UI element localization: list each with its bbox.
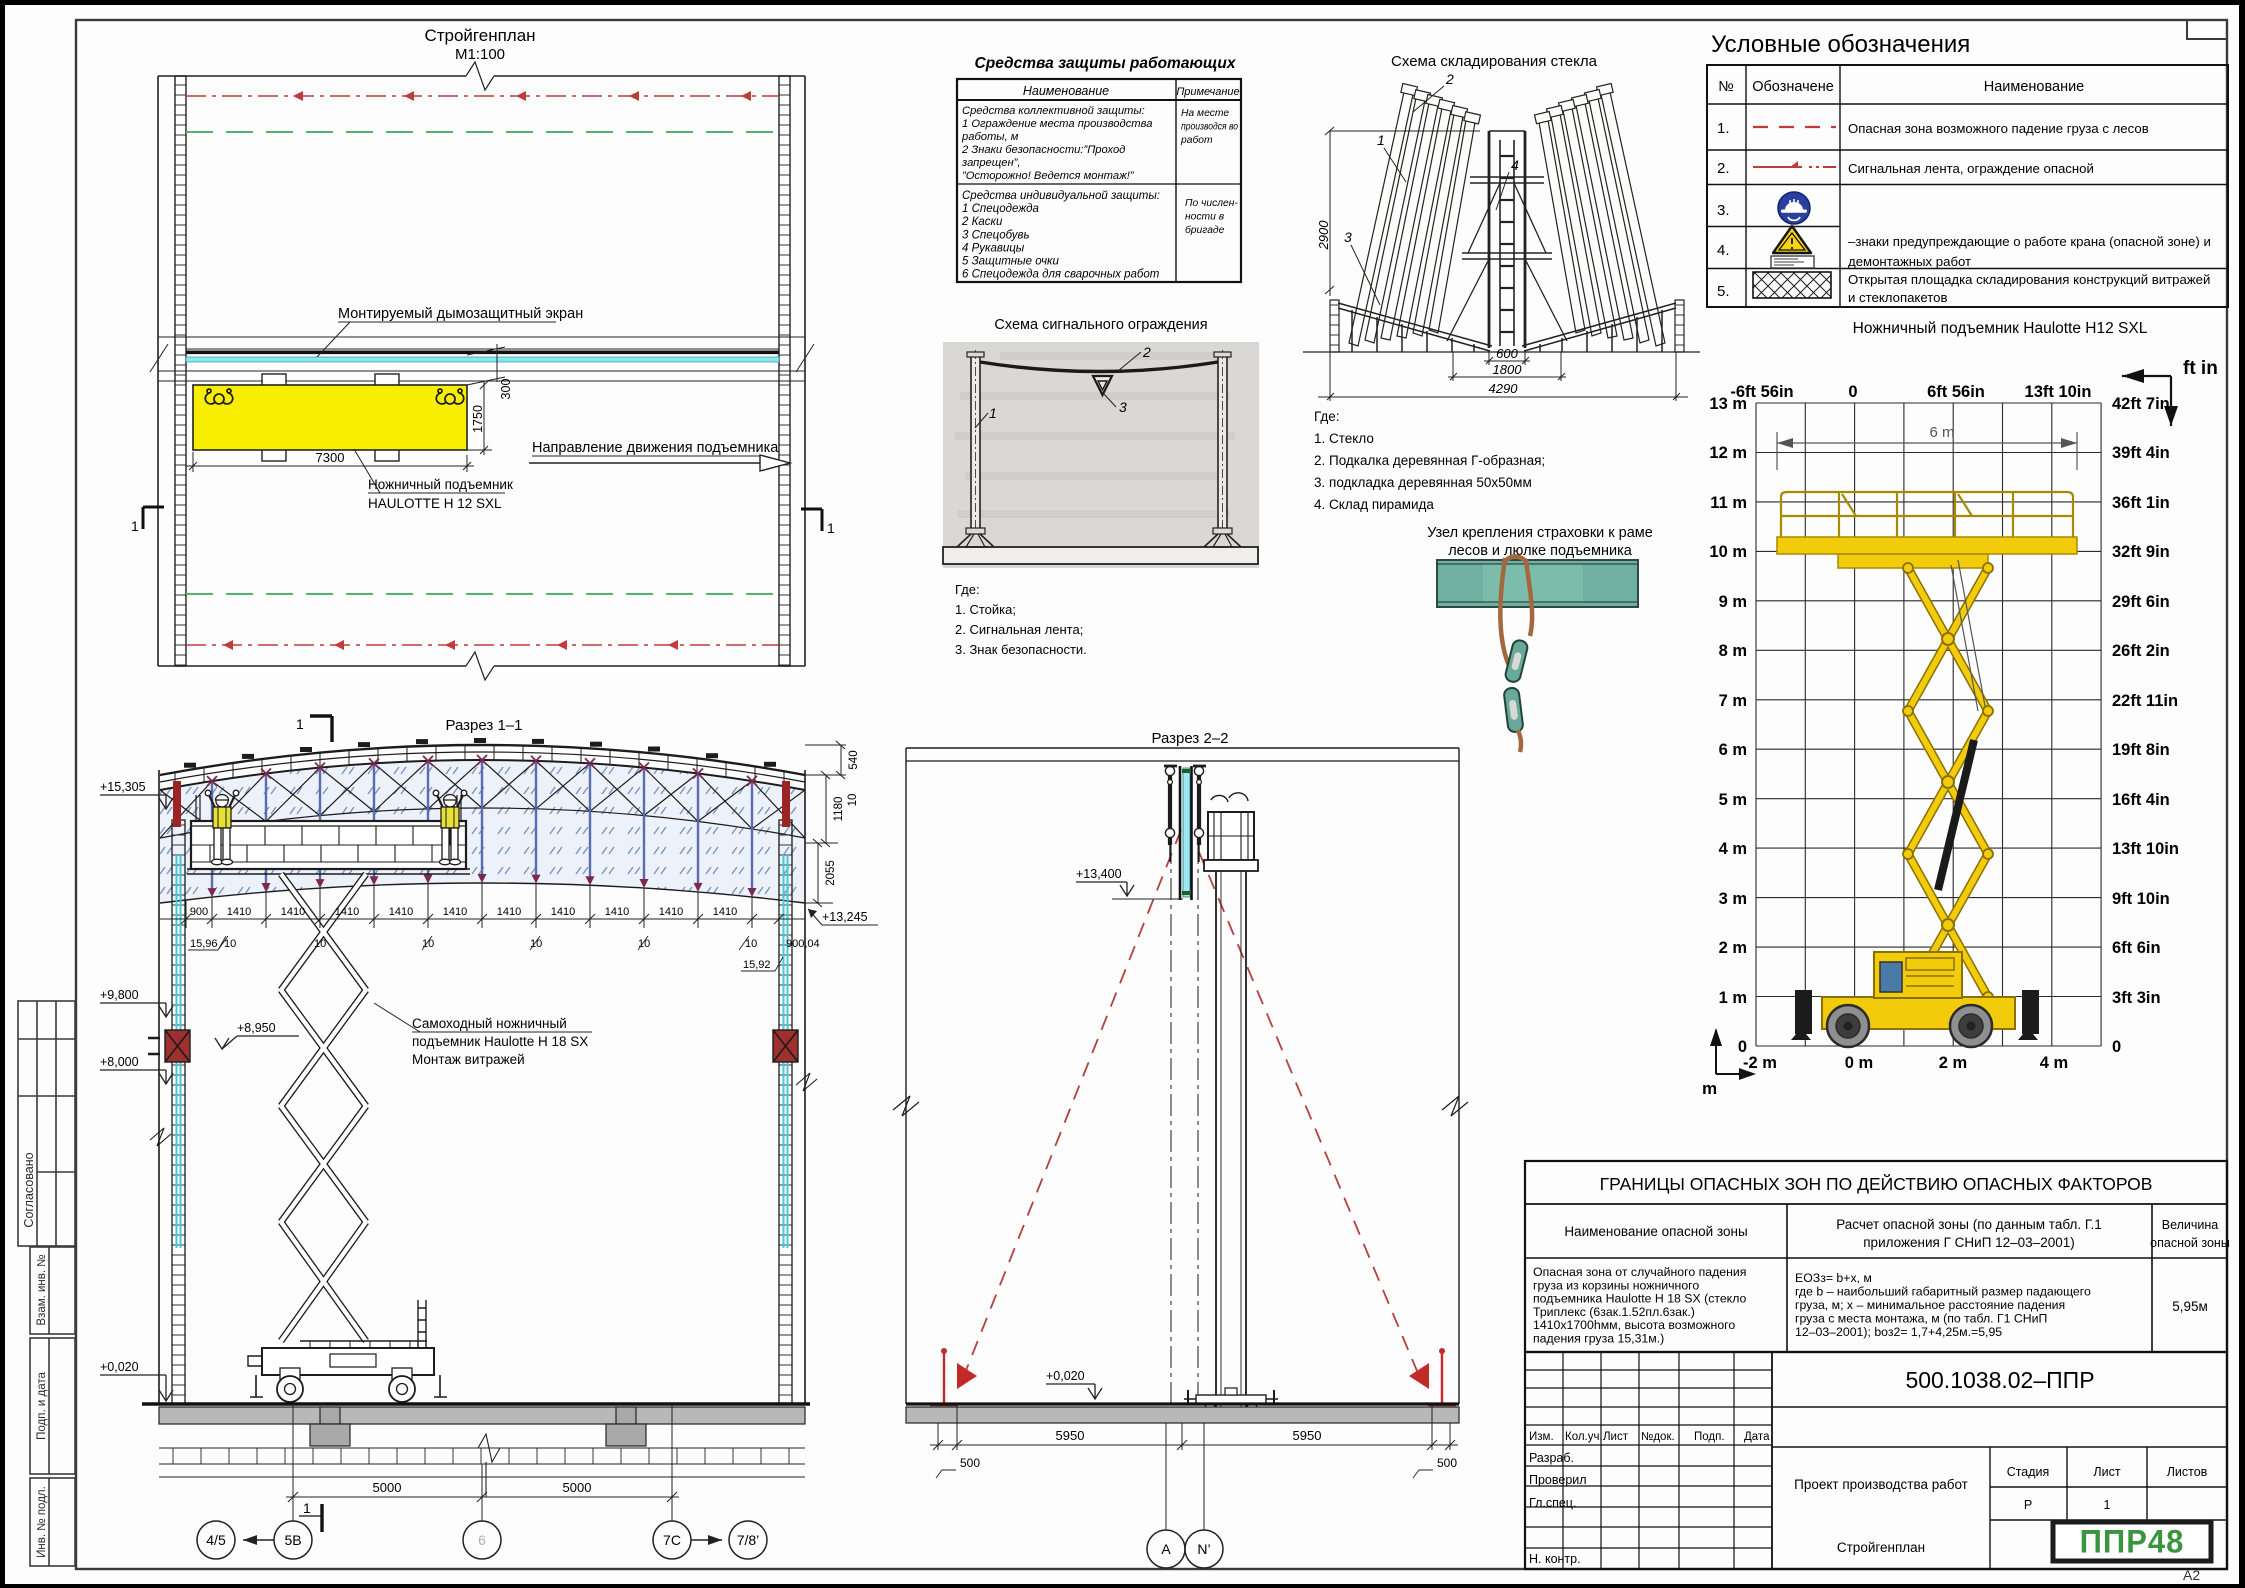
svg-text:Самоходный ножничный: Самоходный ножничный — [412, 1016, 567, 1031]
svg-text:600: 600 — [1496, 346, 1518, 361]
svg-text:Стадия: Стадия — [2007, 1465, 2050, 1479]
svg-text:1410: 1410 — [389, 906, 413, 918]
svg-text:13ft 10in: 13ft 10in — [2025, 383, 2092, 401]
svg-text:+13,245: +13,245 — [822, 910, 868, 924]
svg-text:Разрез 2–2: Разрез 2–2 — [1152, 730, 1229, 747]
svg-text:Изм.: Изм. — [1529, 1431, 1554, 1443]
svg-text:10: 10 — [847, 794, 859, 807]
svg-text:Наименование: Наименование — [1023, 84, 1109, 98]
svg-text:Кол.уч.: Кол.уч. — [1565, 1431, 1603, 1443]
svg-text:Р: Р — [2024, 1498, 2032, 1512]
svg-text:5,95м: 5,95м — [2172, 1299, 2208, 1314]
svg-text:15,96: 15,96 — [190, 938, 218, 950]
svg-text:7300: 7300 — [316, 450, 345, 465]
svg-text:работ: работ — [1180, 134, 1213, 146]
svg-text:5950: 5950 — [1293, 1428, 1322, 1443]
svg-text:500: 500 — [1437, 1456, 1457, 1470]
svg-text:13 m: 13 m — [1709, 395, 1747, 413]
svg-text:4/5: 4/5 — [206, 1532, 226, 1548]
svg-text:0 m: 0 m — [1845, 1054, 1873, 1072]
svg-text:9 m: 9 m — [1719, 593, 1747, 611]
svg-text:3ft 3in: 3ft 3in — [2112, 989, 2161, 1007]
svg-text:+8,000: +8,000 — [100, 1055, 139, 1069]
svg-text:2.: 2. — [1717, 160, 1730, 177]
svg-text:Обозначене: Обозначене — [1752, 79, 1834, 95]
svg-text:работы, м: работы, м — [961, 131, 1019, 143]
svg-text:6 m: 6 m — [1719, 741, 1747, 759]
svg-text:2 Знаки безопасности:”Проход: 2 Знаки безопасности:”Проход — [961, 144, 1125, 156]
svg-text:демонтажных работ: демонтажных работ — [1848, 254, 1971, 269]
svg-text:груза с места монтажа, м (по т: груза с места монтажа, м (по табл. Г1 СН… — [1795, 1312, 2047, 1326]
svg-text:7C: 7C — [663, 1532, 681, 1548]
svg-text:груза, м; х – минимальное расс: груза, м; х – минимальное расстояние пад… — [1795, 1298, 2065, 1312]
svg-text:Монтаж витражей: Монтаж витражей — [412, 1052, 525, 1067]
svg-text:4: 4 — [1511, 157, 1519, 173]
svg-text:42ft 7in: 42ft 7in — [2112, 395, 2170, 413]
svg-text:0: 0 — [1848, 383, 1857, 401]
svg-text:ности в: ности в — [1185, 212, 1225, 223]
svg-text:Где:: Где: — [955, 582, 980, 597]
svg-text:Ножничный подъемник Haulotte H: Ножничный подъемник Haulotte H12 SXL — [1853, 320, 2148, 337]
svg-text:Схема складирования стекла: Схема складирования стекла — [1391, 53, 1598, 70]
svg-text:6: 6 — [478, 1532, 486, 1548]
svg-text:12 m: 12 m — [1709, 444, 1747, 462]
svg-text:+15,305: +15,305 — [100, 780, 146, 794]
svg-text:8 m: 8 m — [1719, 642, 1747, 660]
svg-text:Открытая площадка складировани: Открытая площадка складирования конструк… — [1848, 272, 2210, 287]
svg-text:2: 2 — [1142, 344, 1151, 360]
svg-text:HAULOTTE H 12 SXL: HAULOTTE H 12 SXL — [368, 496, 502, 511]
svg-text:900,04: 900,04 — [786, 938, 820, 950]
svg-text:1 Ограждение места производств: 1 Ограждение места производства — [962, 118, 1152, 130]
svg-text:Листов: Листов — [2167, 1465, 2208, 1479]
svg-text:13ft 10in: 13ft 10in — [2112, 840, 2179, 858]
svg-text:1410: 1410 — [551, 906, 575, 918]
svg-text:Дата: Дата — [1744, 1431, 1770, 1443]
svg-text:Стройгенплан: Стройгенплан — [424, 26, 535, 45]
svg-text:3: 3 — [1119, 399, 1127, 415]
svg-text:1: 1 — [827, 520, 835, 536]
svg-text:1.: 1. — [1717, 120, 1730, 137]
svg-text:Расчет опасной зоны (по данным: Расчет опасной зоны (по данным табл. Г.1 — [1836, 1217, 2102, 1232]
svg-text:1. Стекло: 1. Стекло — [1314, 431, 1374, 446]
svg-text:26ft 2in: 26ft 2in — [2112, 642, 2170, 660]
svg-text:0: 0 — [2112, 1038, 2121, 1056]
svg-text:5.: 5. — [1717, 283, 1730, 300]
svg-text:где b – наибольший габаритный: где b – наибольший габаритный размер пад… — [1795, 1285, 2091, 1299]
svg-text:Гл.спец.: Гл.спец. — [1529, 1496, 1576, 1510]
svg-text:16ft 4in: 16ft 4in — [2112, 791, 2170, 809]
svg-text:6 Спецодежда для сварочных раб: 6 Спецодежда для сварочных работ — [962, 269, 1160, 281]
svg-text:Разраб.: Разраб. — [1529, 1451, 1574, 1465]
svg-text:12–03–2001); bоз2= 1,7+4,25м.=: 12–03–2001); bоз2= 1,7+4,25м.=5,95 — [1795, 1325, 2002, 1339]
svg-text:1800: 1800 — [1493, 362, 1523, 377]
svg-text:22ft 11in: 22ft 11in — [2112, 692, 2178, 710]
svg-text:39ft 4in: 39ft 4in — [2112, 444, 2170, 462]
svg-text:падения груза 15,31м.): падения груза 15,31м.) — [1533, 1332, 1664, 1346]
svg-text:1410: 1410 — [497, 906, 521, 918]
svg-text:Лист: Лист — [1603, 1431, 1629, 1443]
svg-text:15,92: 15,92 — [743, 959, 771, 971]
svg-text:5B: 5B — [284, 1532, 301, 1548]
svg-text:ППР48: ППР48 — [2080, 1523, 2185, 1560]
svg-text:Подп.: Подп. — [1694, 1431, 1725, 1443]
svg-text:Величина: Величина — [2162, 1218, 2219, 1232]
svg-text:4. Склад пирамида: 4. Склад пирамида — [1314, 497, 1434, 512]
svg-text:ft in: ft in — [2183, 358, 2218, 379]
svg-text:N’: N’ — [1197, 1541, 1210, 1557]
svg-text:3 m: 3 m — [1719, 890, 1747, 908]
svg-text:5000: 5000 — [563, 1480, 592, 1495]
svg-text:300: 300 — [499, 379, 513, 400]
svg-text:1: 1 — [303, 1500, 311, 1516]
svg-text:1750: 1750 — [471, 405, 485, 433]
svg-text:подъемника Haulotte Н 18 SX (с: подъемника Haulotte Н 18 SX (стекло — [1533, 1292, 1747, 1306]
svg-text:Разрез 1–1: Разрез 1–1 — [446, 717, 523, 734]
svg-text:Направление движения подъемник: Направление движения подъемника — [532, 440, 779, 456]
svg-text:1: 1 — [2104, 1498, 2111, 1512]
svg-text:9ft 10in: 9ft 10in — [2112, 890, 2170, 908]
svg-text:+0,020: +0,020 — [1046, 1369, 1085, 1383]
svg-text:№: № — [1718, 79, 1734, 95]
svg-text:6ft 56in: 6ft 56in — [1927, 383, 1985, 401]
svg-text:опасной зоны: опасной зоны — [2150, 1236, 2230, 1250]
svg-text:груза из корзины ножничного: груза из корзины ножничного — [1533, 1278, 1699, 1292]
svg-text:Средства индивидуальной защиты: Средства индивидуальной защиты: — [962, 190, 1160, 202]
svg-text:Сигнальная лента, ограждение о: Сигнальная лента, ограждение опасной — [1848, 161, 2094, 176]
svg-text:11 m: 11 m — [1710, 494, 1747, 512]
svg-text:Опасная зона возможного падени: Опасная зона возможного падение груза с … — [1848, 121, 2149, 136]
svg-text:запрещен”,: запрещен”, — [961, 157, 1021, 169]
svg-text:1410: 1410 — [227, 906, 251, 918]
svg-text:ГРАНИЦЫ ОПАСНЫХ ЗОН ПО ДЕЙСТВИ: ГРАНИЦЫ ОПАСНЫХ ЗОН ПО ДЕЙСТВИЮ ОПАСНЫХ … — [1600, 1173, 2153, 1194]
svg-text:+13,400: +13,400 — [1076, 867, 1122, 881]
svg-text:и стеклопакетов: и стеклопакетов — [1848, 290, 1947, 305]
svg-text:1: 1 — [131, 518, 139, 534]
svg-text:Наименование опасной зоны: Наименование опасной зоны — [1564, 1224, 1747, 1239]
svg-text:Примечание: Примечание — [1176, 86, 1239, 98]
svg-text:Стройгенплан: Стройгенплан — [1837, 1540, 1925, 1555]
svg-text:Триплекс (6зак.1.52пл.6зак.): Триплекс (6зак.1.52пл.6зак.) — [1533, 1305, 1695, 1319]
svg-text:2: 2 — [1445, 71, 1454, 87]
svg-text:1180: 1180 — [833, 797, 845, 822]
svg-text:1410х1700hмм, высота возможног: 1410х1700hмм, высота возможного — [1533, 1318, 1735, 1332]
svg-text:1: 1 — [296, 716, 304, 732]
svg-text:+8,950: +8,950 — [237, 1021, 276, 1035]
svg-text:7 m: 7 m — [1719, 692, 1747, 710]
svg-text:540: 540 — [848, 750, 860, 769]
svg-text:1410: 1410 — [281, 906, 305, 918]
svg-text:2. Подкалка деревянная Г-образ: 2. Подкалка деревянная Г-образная; — [1314, 453, 1545, 468]
svg-text:Взам. инв. №: Взам. инв. № — [36, 1254, 48, 1325]
svg-text:5000: 5000 — [373, 1480, 402, 1495]
svg-text:4290: 4290 — [1489, 381, 1519, 396]
svg-text:Согласовано: Согласовано — [22, 1152, 36, 1227]
svg-text:Подп. и дата: Подп. и дата — [36, 1372, 48, 1440]
svg-text:подъемник Haulotte Н 18 SX: подъемник Haulotte Н 18 SX — [412, 1034, 588, 1049]
svg-text:4 Рукавицы: 4 Рукавицы — [962, 242, 1025, 254]
svg-text:1: 1 — [989, 405, 997, 421]
svg-text:ЕОЗз= b+х, м: ЕОЗз= b+х, м — [1795, 1271, 1872, 1285]
svg-text:приложения Г СНиП 12–03–2001): приложения Г СНиП 12–03–2001) — [1863, 1235, 2074, 1250]
svg-text:6 m: 6 m — [1929, 424, 1954, 441]
svg-text:1. Стойка;: 1. Стойка; — [955, 602, 1016, 617]
svg-text:Условные обозначения: Условные обозначения — [1711, 31, 1970, 58]
svg-text:3. Знак безопасности.: 3. Знак безопасности. — [955, 642, 1087, 657]
svg-text:Узел крепления страховки к рам: Узел крепления страховки к раме — [1427, 525, 1653, 541]
svg-text:1 m: 1 m — [1719, 989, 1747, 1007]
svg-text:1410: 1410 — [659, 906, 683, 918]
svg-text:3. подкладка деревянная 50х50м: 3. подкладка деревянная 50х50мм — [1314, 475, 1532, 490]
svg-text:На месте: На месте — [1181, 108, 1229, 119]
svg-text:1410: 1410 — [443, 906, 467, 918]
svg-text:3.: 3. — [1717, 202, 1730, 219]
svg-text:1: 1 — [1377, 132, 1385, 148]
svg-text:Проект производства работ: Проект производства работ — [1794, 1477, 1968, 1492]
svg-text:1410: 1410 — [713, 906, 737, 918]
svg-text:29ft 6in: 29ft 6in — [2112, 593, 2170, 611]
svg-text:+9,800: +9,800 — [100, 988, 139, 1002]
svg-text:–знаки предупреждающие о работ: –знаки предупреждающие о работе крана (о… — [1848, 234, 2211, 249]
svg-text:2 m: 2 m — [1939, 1054, 1967, 1072]
svg-text:2055: 2055 — [825, 860, 837, 886]
svg-text:4 m: 4 m — [1719, 840, 1747, 858]
svg-text:А: А — [1161, 1541, 1171, 1557]
svg-text:По числен-: По числен- — [1185, 198, 1238, 209]
svg-text:А2: А2 — [2183, 1567, 2200, 1583]
svg-text:1410: 1410 — [335, 906, 359, 918]
svg-text:Лист: Лист — [2093, 1465, 2120, 1479]
svg-text:Средства коллективной защиты:: Средства коллективной защиты: — [962, 105, 1145, 117]
svg-text:19ft 8in: 19ft 8in — [2112, 741, 2170, 759]
svg-text:500.1038.02–ППР: 500.1038.02–ППР — [1905, 1367, 2094, 1393]
svg-text:Ножничный подъемник: Ножничный подъемник — [368, 477, 513, 492]
svg-text:производся во: производся во — [1181, 122, 1238, 133]
svg-text:3: 3 — [1344, 229, 1352, 245]
svg-text:Средства защиты работающих: Средства защиты работающих — [975, 55, 1237, 72]
svg-text:5 Защитные очки: 5 Защитные очки — [962, 256, 1059, 268]
svg-text:2 m: 2 m — [1719, 939, 1747, 957]
svg-text:”Осторожно! Ведется монтаж!”: ”Осторожно! Ведется монтаж!” — [962, 170, 1135, 182]
svg-text:Инв. № подл.: Инв. № подл. — [36, 1486, 48, 1558]
svg-text:Наименование: Наименование — [1984, 79, 2085, 95]
svg-text:7/8’: 7/8’ — [737, 1532, 760, 1548]
svg-text:Н. контр.: Н. контр. — [1529, 1552, 1581, 1566]
svg-text:2. Сигнальная лента;: 2. Сигнальная лента; — [955, 622, 1083, 637]
svg-text:m: m — [1702, 1079, 1717, 1098]
svg-text:Монтируемый дымозащитный экран: Монтируемый дымозащитный экран — [338, 306, 583, 322]
svg-text:-2 m: -2 m — [1743, 1054, 1777, 1072]
svg-text:Проверил: Проверил — [1529, 1473, 1587, 1487]
svg-text:900: 900 — [190, 906, 208, 918]
svg-text:36ft 1in: 36ft 1in — [2112, 494, 2170, 512]
svg-text:1410: 1410 — [605, 906, 629, 918]
svg-text:2 Каски: 2 Каски — [961, 216, 1003, 228]
svg-text:лесов и люлке подъемника: лесов и люлке подъемника — [1448, 543, 1633, 559]
svg-text:1 Спецодежда: 1 Спецодежда — [962, 203, 1039, 215]
svg-text:10 m: 10 m — [1709, 543, 1747, 561]
svg-text:6ft 6in: 6ft 6in — [2112, 939, 2161, 957]
svg-text:5 m: 5 m — [1719, 791, 1747, 809]
svg-text:4.: 4. — [1717, 242, 1730, 259]
svg-text:М1:100: М1:100 — [455, 46, 505, 63]
svg-text:3 Спецобувь: 3 Спецобувь — [962, 229, 1030, 241]
svg-text:Схема сигнального ограждения: Схема сигнального ограждения — [994, 317, 1207, 333]
svg-text:№док.: №док. — [1641, 1431, 1675, 1443]
svg-text:32ft 9in: 32ft 9in — [2112, 543, 2170, 561]
svg-text:+0,020: +0,020 — [100, 1360, 139, 1374]
svg-text:4 m: 4 m — [2040, 1054, 2068, 1072]
svg-text:5950: 5950 — [1056, 1428, 1085, 1443]
svg-text:2900: 2900 — [1316, 220, 1331, 251]
svg-text:Опасная зона от случайного пад: Опасная зона от случайного падения — [1533, 1265, 1746, 1279]
svg-text:500: 500 — [960, 1456, 980, 1470]
svg-text:бригаде: бригаде — [1185, 224, 1225, 236]
svg-text:Где:: Где: — [1314, 409, 1340, 424]
